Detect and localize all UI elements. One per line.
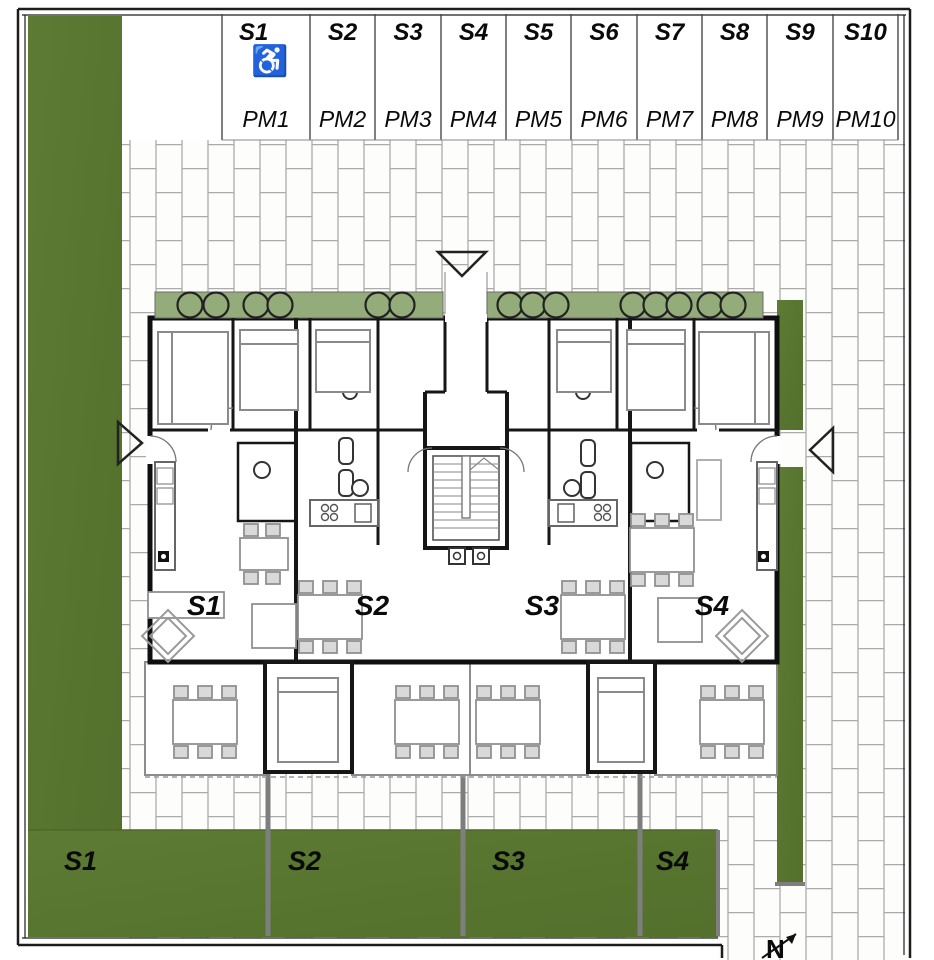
shrub-icon xyxy=(698,293,723,318)
garden-label: S1 xyxy=(64,846,97,877)
shrub-icon xyxy=(621,293,646,318)
parking-space-label: S5 xyxy=(507,19,570,47)
parking-space-label: S7 xyxy=(638,19,701,47)
shrub-icon xyxy=(667,293,692,318)
parking-stall: S2 PM2 xyxy=(311,14,374,140)
terrace-dining-set xyxy=(700,686,764,758)
wheelchair-icon: ♿ xyxy=(223,47,309,77)
parking-pm-label: PM1 xyxy=(223,106,309,133)
terrace-dining-set xyxy=(173,686,237,758)
parking-stall: S7 PM7 xyxy=(638,14,701,140)
unit-label: S1 xyxy=(187,590,221,622)
entrance-walkway xyxy=(445,272,487,320)
parking-space-label: S3 xyxy=(376,19,440,47)
parking-space-label: S8 xyxy=(703,19,766,47)
parking-stall: S10 PM10 xyxy=(834,14,897,140)
parking-pm-label: PM10 xyxy=(834,106,897,133)
garden-label: S2 xyxy=(288,846,321,877)
lawn-strip-right-upper xyxy=(777,300,803,430)
parking-stall: S1 ♿ PM1 xyxy=(223,14,309,140)
unit-label: S2 xyxy=(355,590,389,622)
parking-space-label: S4 xyxy=(442,19,505,47)
parking-stall: S5 PM5 xyxy=(507,14,570,140)
garden-label: S3 xyxy=(492,846,525,877)
parking-stall: S6 PM6 xyxy=(572,14,636,140)
shrub-icon xyxy=(268,293,293,318)
shrub-icon xyxy=(498,293,523,318)
parking-space-label: S6 xyxy=(572,19,636,47)
parking-pm-label: PM3 xyxy=(376,106,440,133)
lawn-strip-right-lower xyxy=(777,467,803,884)
shrub-icon xyxy=(521,293,546,318)
shrub-icon xyxy=(644,293,669,318)
parking-stall: S3 PM3 xyxy=(376,14,440,140)
parking-pm-label: PM9 xyxy=(768,106,832,133)
parking-space-label: S2 xyxy=(311,19,374,47)
lawn-strip-left xyxy=(28,16,122,937)
site-plan-drawing xyxy=(0,0,934,960)
terrace-dining-set xyxy=(476,686,540,758)
shrub-icon xyxy=(544,293,569,318)
garden-label: S4 xyxy=(656,846,689,877)
dining-set xyxy=(561,581,625,653)
dining-set xyxy=(630,514,694,586)
shrub-icon xyxy=(390,293,415,318)
parking-pm-label: PM2 xyxy=(311,106,374,133)
shrub-icon xyxy=(244,293,269,318)
north-label: N xyxy=(766,934,785,960)
shrub-icon xyxy=(366,293,391,318)
parking-pm-label: PM4 xyxy=(442,106,505,133)
parking-space-label: S10 xyxy=(834,19,897,47)
garden-band xyxy=(28,830,718,937)
unit-label: S4 xyxy=(695,590,729,622)
parking-space-label: S1 xyxy=(223,19,309,47)
shrub-icon xyxy=(721,293,746,318)
site-plan: S1 ♿ PM1 S2 PM2 S3 PM3 S4 PM4 S5 PM5 S6 … xyxy=(0,0,934,960)
terrace-dining-set xyxy=(395,686,459,758)
parking-stall: S9 PM9 xyxy=(768,14,832,140)
unit-label: S3 xyxy=(525,590,559,622)
parking-stall: S4 PM4 xyxy=(442,14,505,140)
parking-pm-label: PM5 xyxy=(507,106,570,133)
stairwell xyxy=(425,448,507,564)
parking-stall: S8 PM8 xyxy=(703,14,766,140)
sofa xyxy=(697,460,721,520)
shrub-icon xyxy=(178,293,203,318)
parking-pm-label: PM8 xyxy=(703,106,766,133)
dining-set xyxy=(298,581,362,653)
parking-space-label: S9 xyxy=(768,19,832,47)
parking-pm-label: PM6 xyxy=(572,106,636,133)
side-table xyxy=(252,604,296,648)
shrub-icon xyxy=(204,293,229,318)
parking-pm-label: PM7 xyxy=(638,106,701,133)
